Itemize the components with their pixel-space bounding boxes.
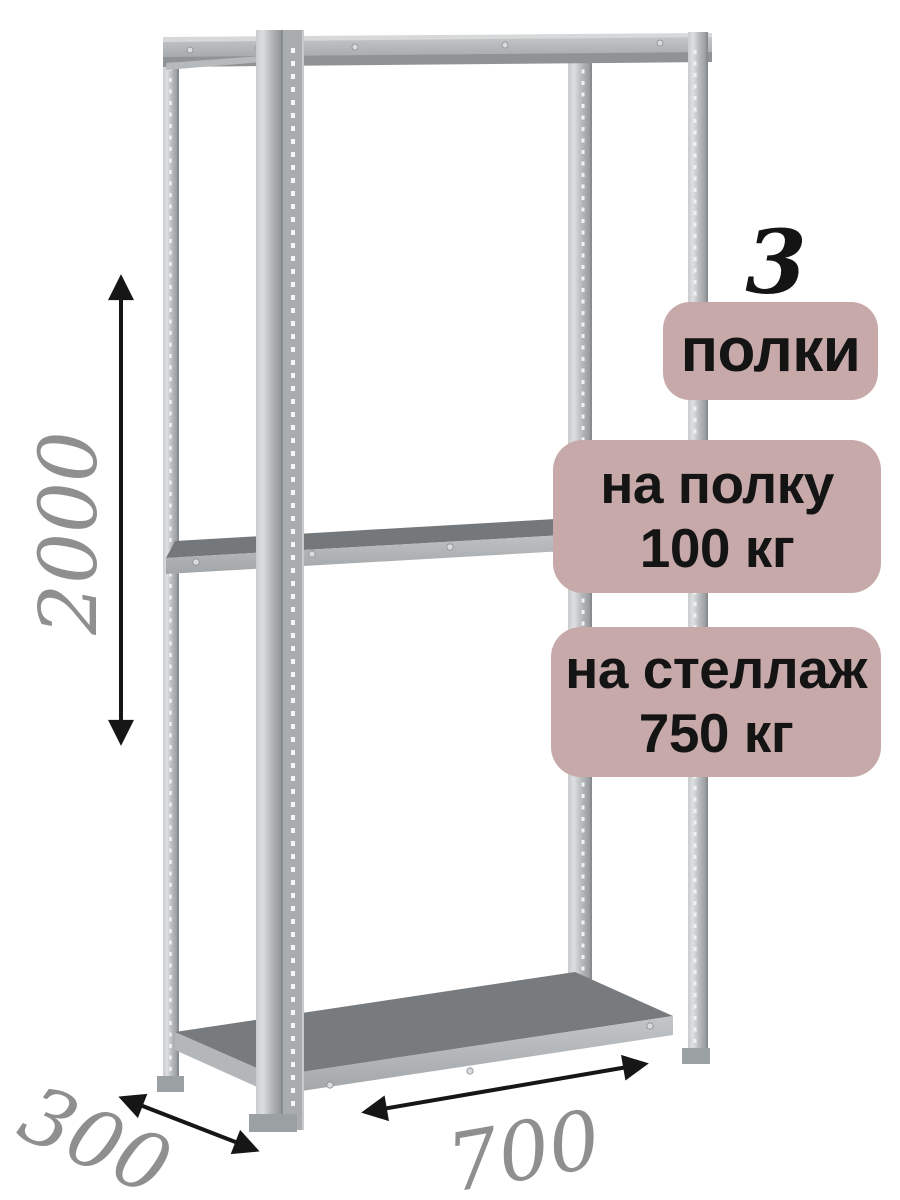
- badge-load-per-shelf-line1: на полку: [600, 453, 834, 517]
- top-shelf: [163, 33, 712, 70]
- shelf-count-number: 3: [726, 210, 826, 315]
- badge-shelves: полки: [663, 302, 878, 400]
- badge-load-per-rack-line1: на стеллаж: [565, 638, 867, 702]
- product-image: 2000 300 700 3 полки на полку 100 кг на …: [0, 0, 900, 1200]
- badge-load-per-rack: на стеллаж 750 кг: [551, 627, 881, 777]
- badge-load-per-rack-line2: 750 кг: [639, 702, 793, 766]
- rack-illustration: [0, 0, 900, 1200]
- badge-load-per-shelf-line2: 100 кг: [640, 517, 794, 581]
- bottom-shelf: [175, 972, 673, 1095]
- badge-load-per-shelf: на полку 100 кг: [553, 440, 881, 593]
- badge-shelves-label: полки: [681, 320, 861, 382]
- post-left-front: [249, 30, 304, 1132]
- height-dimension-label: 2000: [14, 363, 124, 703]
